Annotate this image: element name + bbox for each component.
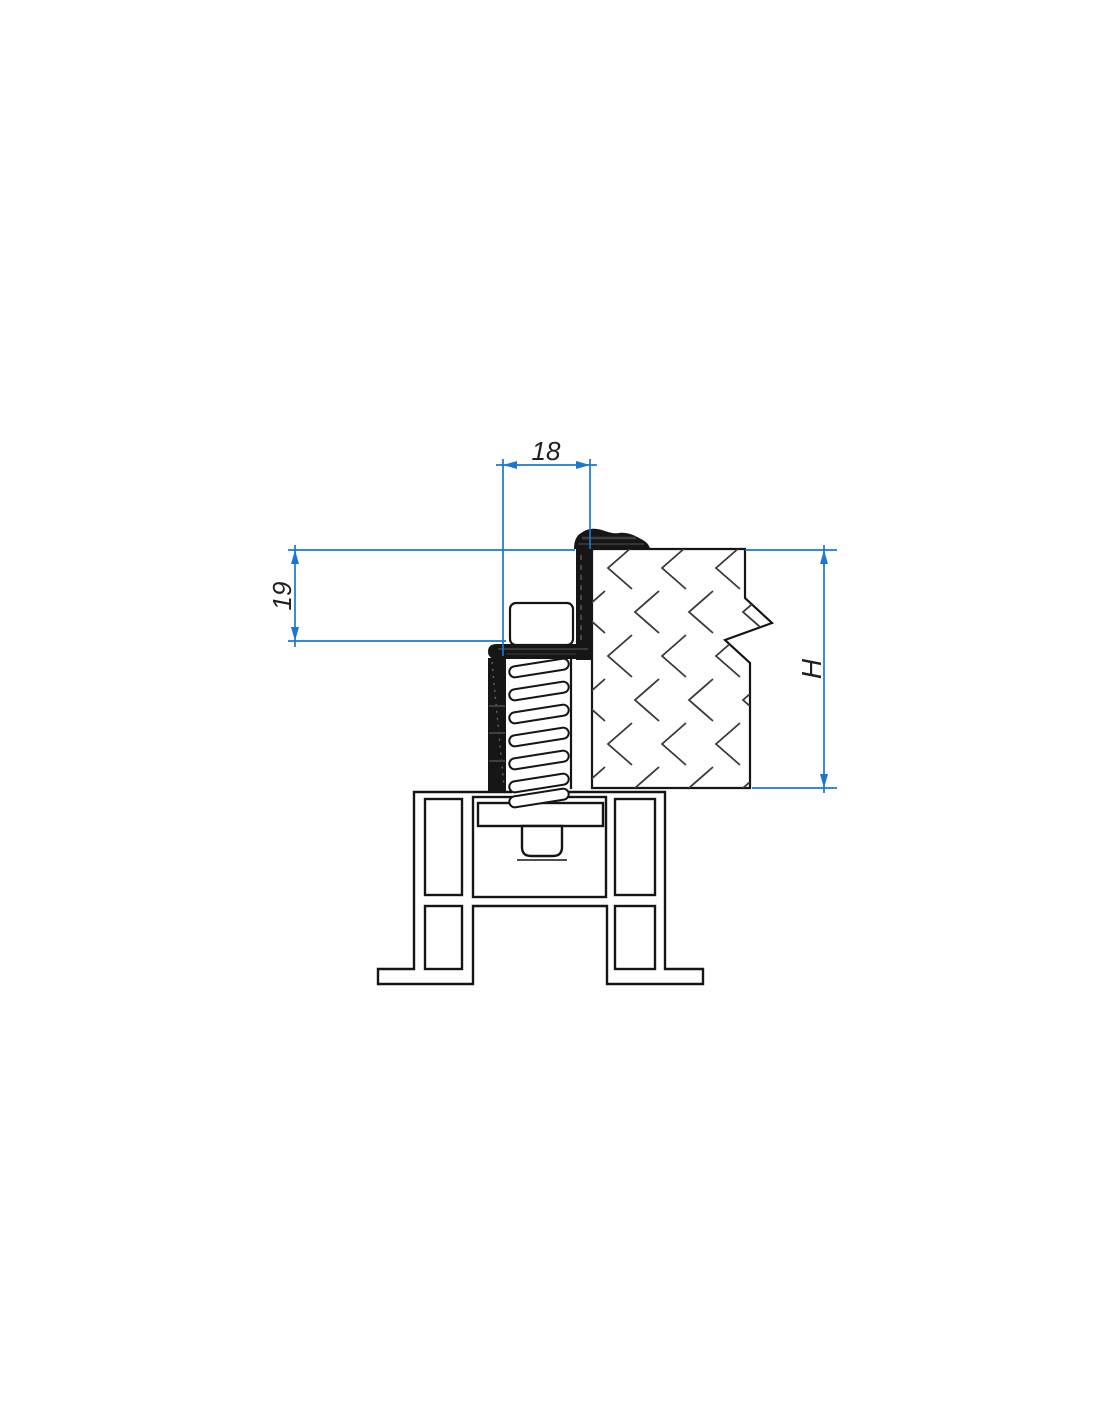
arrow-up bbox=[291, 550, 299, 564]
panel-hatch bbox=[592, 549, 772, 788]
profile-chamber bbox=[425, 906, 462, 969]
arrow-up bbox=[820, 550, 828, 564]
cross-section-drawing: 18 19 H bbox=[0, 0, 1100, 1422]
profile-chamber bbox=[615, 799, 655, 895]
arrow-right bbox=[576, 461, 590, 469]
technical-drawing-page: 18 19 H bbox=[0, 0, 1100, 1422]
dim-h-label: H bbox=[796, 658, 827, 679]
screw-thread-coil bbox=[509, 658, 571, 808]
profile-chamber bbox=[615, 906, 655, 969]
arrow-left bbox=[503, 461, 517, 469]
mounting-profile bbox=[378, 792, 703, 984]
dim-19-label: 19 bbox=[267, 582, 297, 611]
screw-head bbox=[510, 603, 573, 645]
screw-channel-block bbox=[478, 803, 603, 826]
sandwich-panel bbox=[592, 549, 772, 788]
arrow-down bbox=[820, 774, 828, 788]
screw-boss bbox=[522, 826, 562, 856]
clamp-vertical-right bbox=[576, 548, 592, 660]
arrow-down bbox=[291, 627, 299, 641]
profile-chamber bbox=[425, 799, 462, 895]
dim-18-label: 18 bbox=[532, 436, 561, 466]
clamp-vertical-left bbox=[488, 658, 506, 791]
